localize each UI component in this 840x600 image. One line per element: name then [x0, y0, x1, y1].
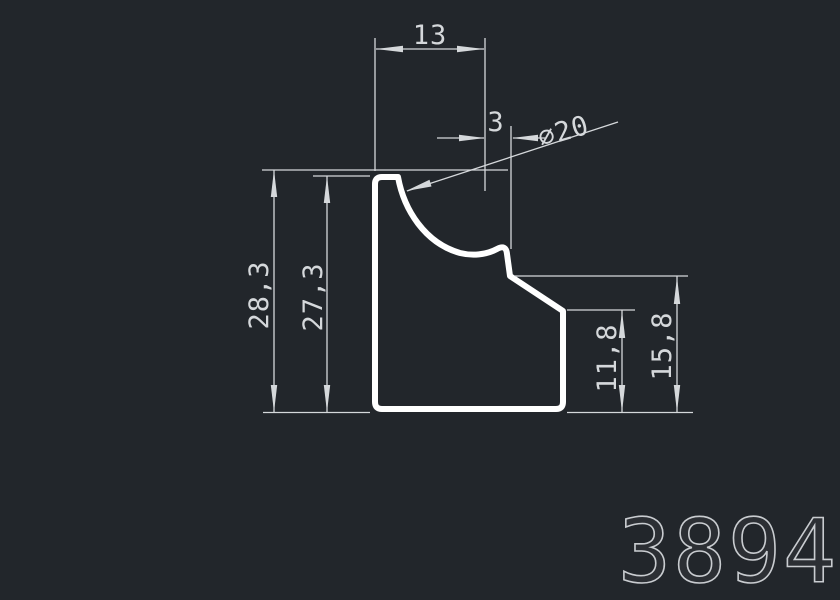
dim-label-right-shoulder-height: 15,8	[647, 311, 678, 380]
drawing-number: 3894	[618, 508, 838, 596]
arrowhead	[324, 385, 330, 412]
profile-outline	[375, 177, 563, 409]
arrowhead	[376, 46, 403, 52]
arrowhead	[271, 385, 277, 412]
dim-label-height-top-face: 27,3	[298, 262, 329, 331]
arrowhead	[457, 46, 484, 52]
arrowhead	[324, 176, 330, 203]
arrowhead	[406, 180, 432, 191]
arrowhead	[512, 135, 538, 141]
dimension-lines	[262, 38, 693, 413]
dim-label-arc-diameter: ⌀20	[534, 110, 592, 154]
dim-label-height-overall: 28,3	[244, 260, 275, 329]
arrowhead	[271, 170, 277, 197]
arrowhead	[674, 385, 680, 412]
dimension-labels: 13 3 ⌀20 28,3 27,3 11,8 15,8	[244, 20, 678, 393]
dim-label-top-width: 13	[413, 20, 448, 51]
dim-label-right-step-height: 11,8	[592, 323, 623, 392]
dim-label-arc-offset: 3	[487, 107, 504, 138]
arrowhead	[674, 277, 680, 304]
cad-drawing-page: 13 3 ⌀20 28,3 27,3 11,8 15,8 3894	[0, 0, 840, 600]
arrowhead	[459, 135, 485, 141]
